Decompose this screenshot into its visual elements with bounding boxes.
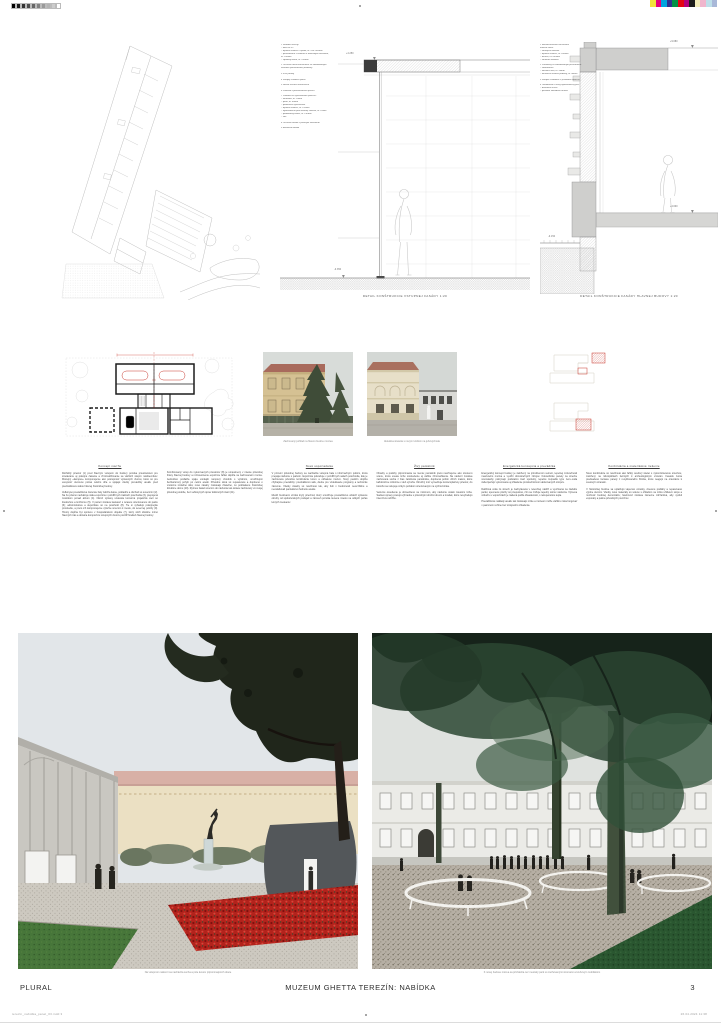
photo-existing-building <box>263 352 353 436</box>
text-line: Nové konštrukcie sú navrhnuté ako ľahký … <box>586 472 682 485</box>
locator-diagram-2 <box>548 401 610 439</box>
detail-annotation-legend: 1 Skladba strechy:– fólia mPVC– tepelná … <box>281 44 363 130</box>
essay-heading: Živý pamätník <box>376 464 472 468</box>
render-memorial-courtyard <box>18 633 358 969</box>
calibration-swatch <box>56 3 61 9</box>
text-line: V prízemí pôvodnej budovy sa nachádza vs… <box>272 472 368 492</box>
footer-page-number: 3 <box>690 983 695 992</box>
sheet-bottom-edge <box>0 1022 721 1023</box>
axonometric-drawing <box>60 42 260 300</box>
footer-panel-title: MUZEUM GHETTA TEREZÍN: NABÍDKA <box>0 983 721 992</box>
detail-caption-entry: Detail konštrukcie vstupnej fasády 1:20 <box>280 294 530 298</box>
text-line: Veľkorysé prevádzkové zázemie haly zahŕň… <box>62 491 158 517</box>
level-label: -0.350 <box>334 269 341 271</box>
photo-caption: Aktuálna situácia s novým krídlom na juh… <box>367 440 457 443</box>
essay-column-3: Nové usporiadanie V prízemí pôvodnej bud… <box>272 464 368 520</box>
essay-heading: Energetická koncepcia a prevádzka <box>481 464 577 468</box>
essay-column-6: Konštrukcia a materiálové riešenie Nové … <box>586 464 682 520</box>
print-slug-right: 26.04.2024 11:38 <box>681 1012 707 1016</box>
detail-caption-main: Detail konštrukcie fasády hlavnej budovy… <box>540 294 718 298</box>
essay-heading: Nové usporiadanie <box>272 464 368 468</box>
render-caption: K novej budove múzea sa prichádza cez me… <box>372 971 712 974</box>
print-slug-left: terezin_nabidka_panel_03.indd 3 <box>12 1012 62 1016</box>
text-line: Medzi budovami vzniká krytý priechod, kt… <box>272 494 368 504</box>
text-line: Rozľahlý priestor (1) pred hlavným vstup… <box>62 472 158 488</box>
essay-column-5: Energetická koncepcia a prevádzka Energe… <box>481 464 577 520</box>
text-line: 9 Betónová dlažba <box>281 127 363 130</box>
photo-site-context <box>367 352 457 436</box>
essay-column-2: Kombinovaný vstup do vykurovaných priest… <box>167 464 263 520</box>
text-line: Prevádzkové náklady areálu tak zostávajú… <box>481 500 577 507</box>
competition-panel-sheet: 1 Skladba strechy:– fólia mPVC– tepelná … <box>0 0 721 1024</box>
floor-plan <box>62 350 237 442</box>
detail-section-entry-facade: 1 Skladba strechy:– fólia mPVC– tepelná … <box>280 42 530 294</box>
essay-text-block: Koncept návrhu Rozľahlý priestor (1) pre… <box>62 464 682 520</box>
level-label: +4.250 <box>346 53 354 55</box>
render-caption: Na vstupnom nádvorí sa nachádza socha a … <box>18 971 358 974</box>
registration-mark-left <box>3 510 5 512</box>
render-park-approach <box>372 633 712 969</box>
text-line: Kombinovaný vstup do vykurovaných priest… <box>167 471 263 494</box>
text-line: Energetický koncept budovy je založený n… <box>481 472 577 485</box>
locator-diagram-1 <box>548 351 610 389</box>
photo-caption: Zachovaný pohľad na hlavnú budovu múzea <box>263 440 353 443</box>
text-line: – pôvodné základové murivo <box>540 90 602 93</box>
level-label: -0.150 <box>548 236 555 238</box>
registration-mark-top <box>359 5 361 7</box>
detail-section-main-facade: 1 Rekonštruovaná zachovaná tehlová stena… <box>540 42 718 294</box>
color-calibration-bar <box>650 0 717 7</box>
text-line: Večerné osvetlenie je obmedzené na minim… <box>376 491 472 501</box>
level-label: +9.680 <box>670 41 678 43</box>
grayscale-calibration-bar <box>11 3 61 9</box>
essay-heading: Koncept návrhu <box>62 464 158 468</box>
essay-heading: Konštrukcia a materiálové riešenie <box>586 464 682 468</box>
registration-mark-bottom <box>365 1014 367 1016</box>
registration-mark-right <box>715 510 717 512</box>
text-line: V historickej budove sa uplatňujú vápenn… <box>586 488 682 501</box>
calibration-swatch <box>712 0 718 7</box>
text-line: Obsahy a podoby pripomínania sa menia; p… <box>376 472 472 488</box>
level-label: +4.600 <box>670 206 678 208</box>
essay-column-1: Koncept návrhu Rozľahlý priestor (1) pre… <box>62 464 158 520</box>
text-line: Dažďová voda zo striech je zachytávaná v… <box>481 488 577 498</box>
detail-annotation-legend: 1 Rekonštruovaná zachovaná tehlová stena… <box>540 44 602 93</box>
essay-column-4: Živý pamätník Obsahy a podoby pripomínan… <box>376 464 472 520</box>
